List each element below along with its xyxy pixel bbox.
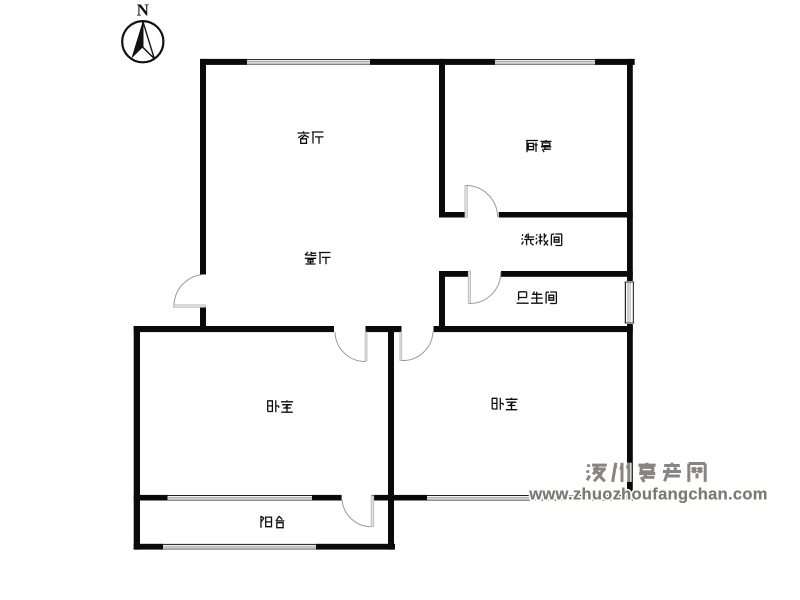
svg-text:www.zhuozhoufangchan.com: www.zhuozhoufangchan.com	[528, 486, 768, 504]
svg-text:N: N	[137, 1, 150, 20]
